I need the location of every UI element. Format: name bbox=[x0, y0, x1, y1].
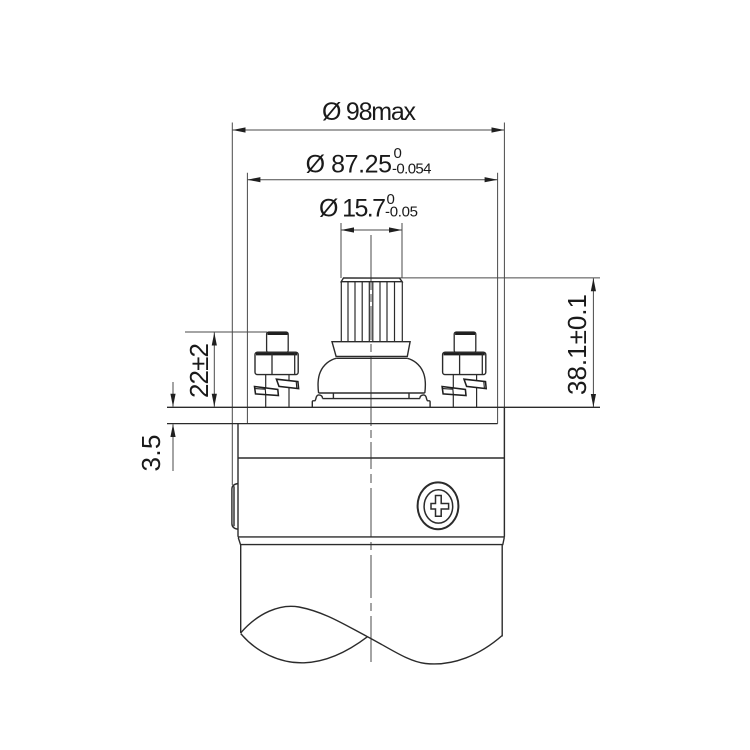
svg-text:Ø 98max: Ø 98max bbox=[322, 98, 417, 126]
svg-text:3.5: 3.5 bbox=[136, 435, 166, 472]
svg-text:22±2: 22±2 bbox=[184, 343, 214, 398]
svg-text:38.1±0.1: 38.1±0.1 bbox=[562, 294, 592, 395]
svg-text:-0.054: -0.054 bbox=[392, 161, 432, 178]
svg-text:Ø 15.7: Ø 15.7 bbox=[319, 195, 386, 223]
svg-text:0: 0 bbox=[394, 145, 402, 162]
svg-text:Ø 87.25: Ø 87.25 bbox=[306, 151, 392, 179]
svg-text:-0.05: -0.05 bbox=[385, 204, 418, 221]
